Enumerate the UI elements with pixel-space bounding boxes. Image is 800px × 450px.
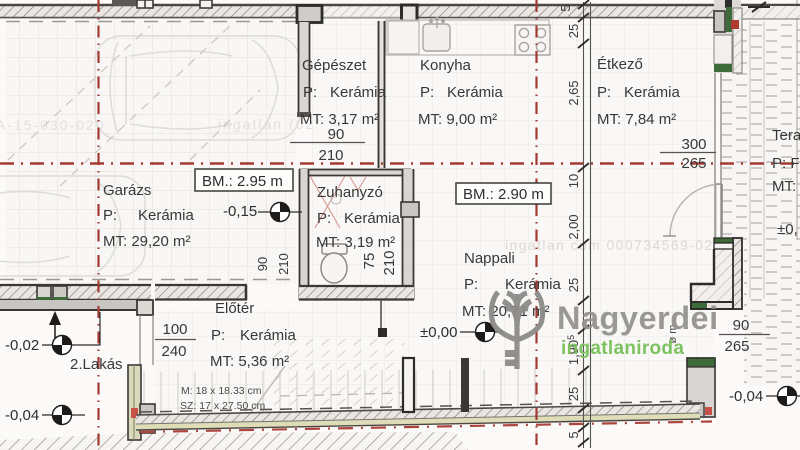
svg-text:M: 18 x 18.33 cm: M: 18 x 18.33 cm [181,385,262,397]
svg-text:90: 90 [255,257,270,271]
svg-text:P: F: P: F [772,155,800,172]
svg-text:-0,15: -0,15 [223,203,257,220]
svg-text:P:: P: [211,327,225,344]
svg-text:240: 240 [161,343,186,360]
svg-text:-0,04: -0,04 [729,388,763,405]
svg-text:Nagyerdei: Nagyerdei [557,300,719,336]
svg-text:P:: P: [303,84,317,101]
svg-text:MT: 3,19 m²: MT: 3,19 m² [316,234,395,251]
svg-text:25: 25 [566,24,581,38]
svg-text:Zuhanyzó: Zuhanyzó [317,184,383,201]
svg-text:P:: P: [420,84,434,101]
svg-text:Kerámia: Kerámia [505,276,562,293]
svg-text:265: 265 [724,338,749,355]
svg-text:ingatlaniroda: ingatlaniroda [561,338,684,359]
svg-text:P:: P: [317,210,331,227]
svg-text:Gépészet: Gépészet [302,57,367,74]
svg-text:A-15-030-020: A-15-030-020 [0,117,106,133]
svg-text:75: 75 [361,253,378,270]
svg-text:Kerámia: Kerámia [330,84,387,101]
svg-text:90: 90 [733,317,750,334]
svg-text:210: 210 [318,147,343,164]
svg-text:Kerámia: Kerámia [624,84,681,101]
svg-text:Kerámia: Kerámia [240,327,297,344]
svg-text:Étkező: Étkező [597,56,643,73]
svg-text:5: 5 [558,4,573,11]
svg-text:10: 10 [566,174,581,188]
svg-text:ingatlan com 000734569-020: ingatlan com 000734569-020 [505,237,723,253]
svg-text:2,65: 2,65 [566,80,581,105]
svg-text:100: 100 [162,321,187,338]
svg-text:210: 210 [381,250,398,275]
svg-text:±0,00: ±0,00 [420,324,457,341]
svg-text:300: 300 [681,136,706,153]
svg-text:-0,02: -0,02 [5,337,39,354]
svg-text:Tera: Tera [772,127,800,144]
svg-text:BM.: 2.95 m: BM.: 2.95 m [202,173,283,190]
svg-text:210: 210 [276,253,291,275]
svg-text:265: 265 [681,155,706,172]
svg-text:SZ: 17 x 27.50 cm: SZ: 17 x 27.50 cm [180,400,265,412]
svg-text:Kerámia: Kerámia [344,210,401,227]
svg-text:Kerámia: Kerámia [447,84,504,101]
svg-text:2.Lakás: 2.Lakás [70,356,123,373]
svg-text:Kerámia: Kerámia [138,207,195,224]
svg-text:5: 5 [566,431,581,438]
svg-text:P:: P: [597,84,611,101]
svg-text:±0,: ±0, [777,221,798,238]
svg-text:Konyha: Konyha [420,57,472,74]
svg-text:Nappali: Nappali [464,250,515,267]
svg-text:MT: 9,00 m²: MT: 9,00 m² [418,111,497,128]
svg-text:25: 25 [566,278,581,292]
svg-text:P:: P: [103,207,117,224]
svg-text:25: 25 [566,387,581,401]
svg-text:Előtér: Előtér [215,300,254,317]
svg-text:MT: 5,36 m²: MT: 5,36 m² [210,353,289,370]
svg-text:90: 90 [328,126,345,143]
svg-text:-0,04: -0,04 [5,407,39,424]
svg-text:MT: 29,20 m²: MT: 29,20 m² [103,233,191,250]
svg-text:MT:: MT: [772,178,796,195]
svg-text:2,00: 2,00 [566,214,581,239]
svg-text:P:: P: [464,276,478,293]
svg-text:MT: 7,84 m²: MT: 7,84 m² [597,111,676,128]
svg-text:Garázs: Garázs [103,182,151,199]
svg-text:BM.: 2.90 m: BM.: 2.90 m [463,186,544,203]
